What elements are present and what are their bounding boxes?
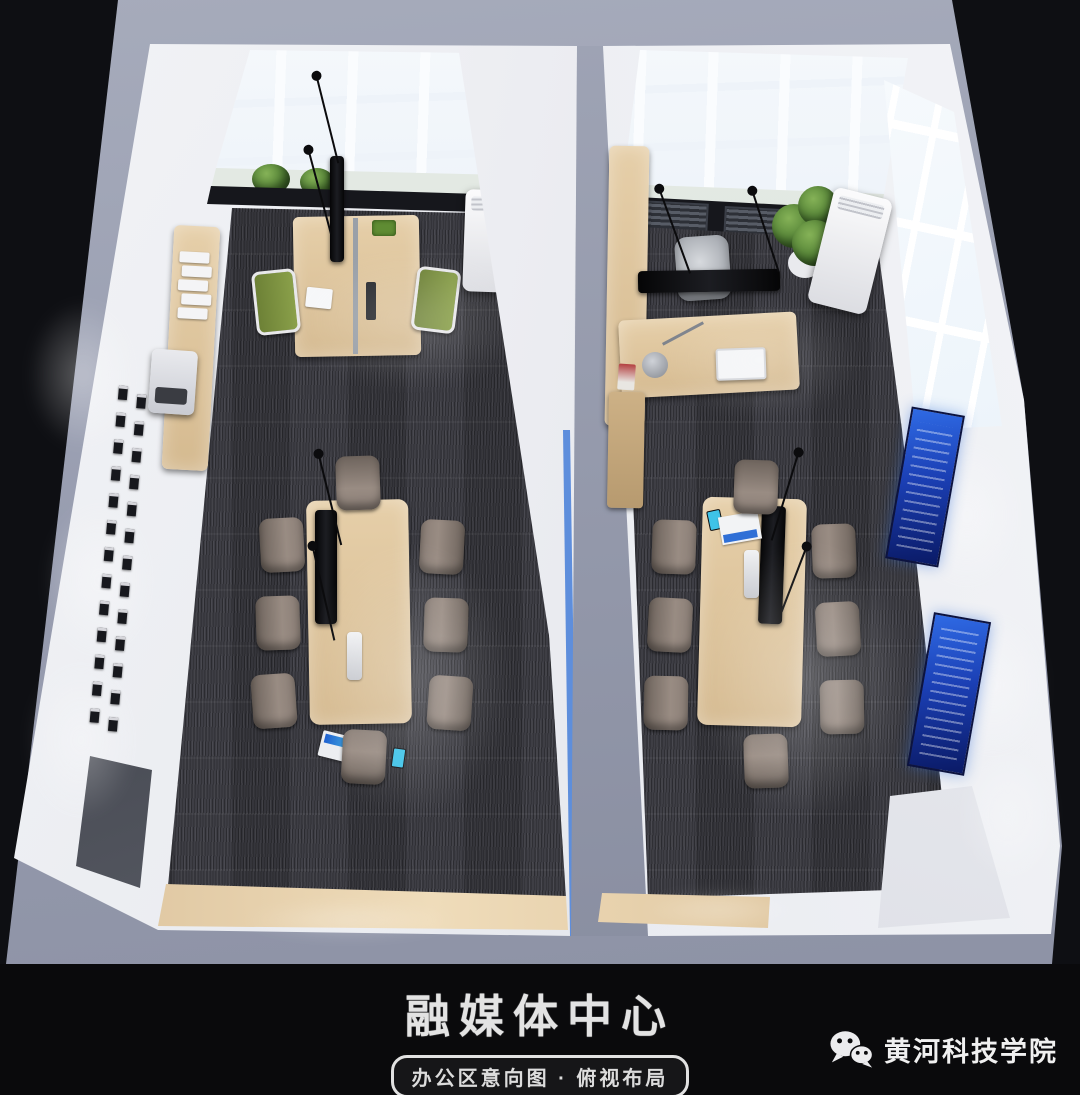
floor-light-pool [700,540,910,820]
conference-chair [644,676,689,731]
hanging-tv-screen [638,269,780,293]
conference-chair [647,597,694,653]
conference-chair [733,459,779,515]
subtitle-text: 办公区意向图 · 俯视布局 [412,1068,669,1090]
office-floorplan-render [0,0,1080,1095]
desk-planter [372,220,396,236]
floor-light-pool [660,300,860,420]
conference-chair [250,673,298,730]
desk-return-cabinet [607,392,645,509]
printer-tray [155,387,188,405]
conference-chair [259,517,306,573]
floor-light-pool [640,890,800,930]
magazine-file [181,293,212,306]
floor-light-pool [310,540,510,820]
wechat-icon [829,1029,875,1069]
caption-strip: 融媒体中心 办公区意向图 · 俯视布局 黄河科技学院 [0,964,1080,1095]
magazine-file [177,307,208,320]
magazine-file [179,251,210,264]
wall-light [958,745,1058,885]
conference-chair [255,595,301,651]
magazine-file [181,265,212,278]
conference-chair [335,455,381,511]
subtitle-badge: 办公区意向图 · 俯视布局 [391,1055,690,1095]
conference-chair [651,519,697,575]
brand-name: 黄河科技学院 [884,1030,1058,1069]
floor-light-pool [240,900,460,940]
magazine [617,363,636,390]
magazine-file [178,279,209,292]
brand-row: 黄河科技学院 [829,1029,1058,1069]
poster-canvas: 融媒体中心 办公区意向图 · 俯视布局 黄河科技学院 [0,0,1080,1095]
hanging-tv-screen [330,156,344,262]
magazine-rack [176,251,213,320]
printer [148,348,198,415]
